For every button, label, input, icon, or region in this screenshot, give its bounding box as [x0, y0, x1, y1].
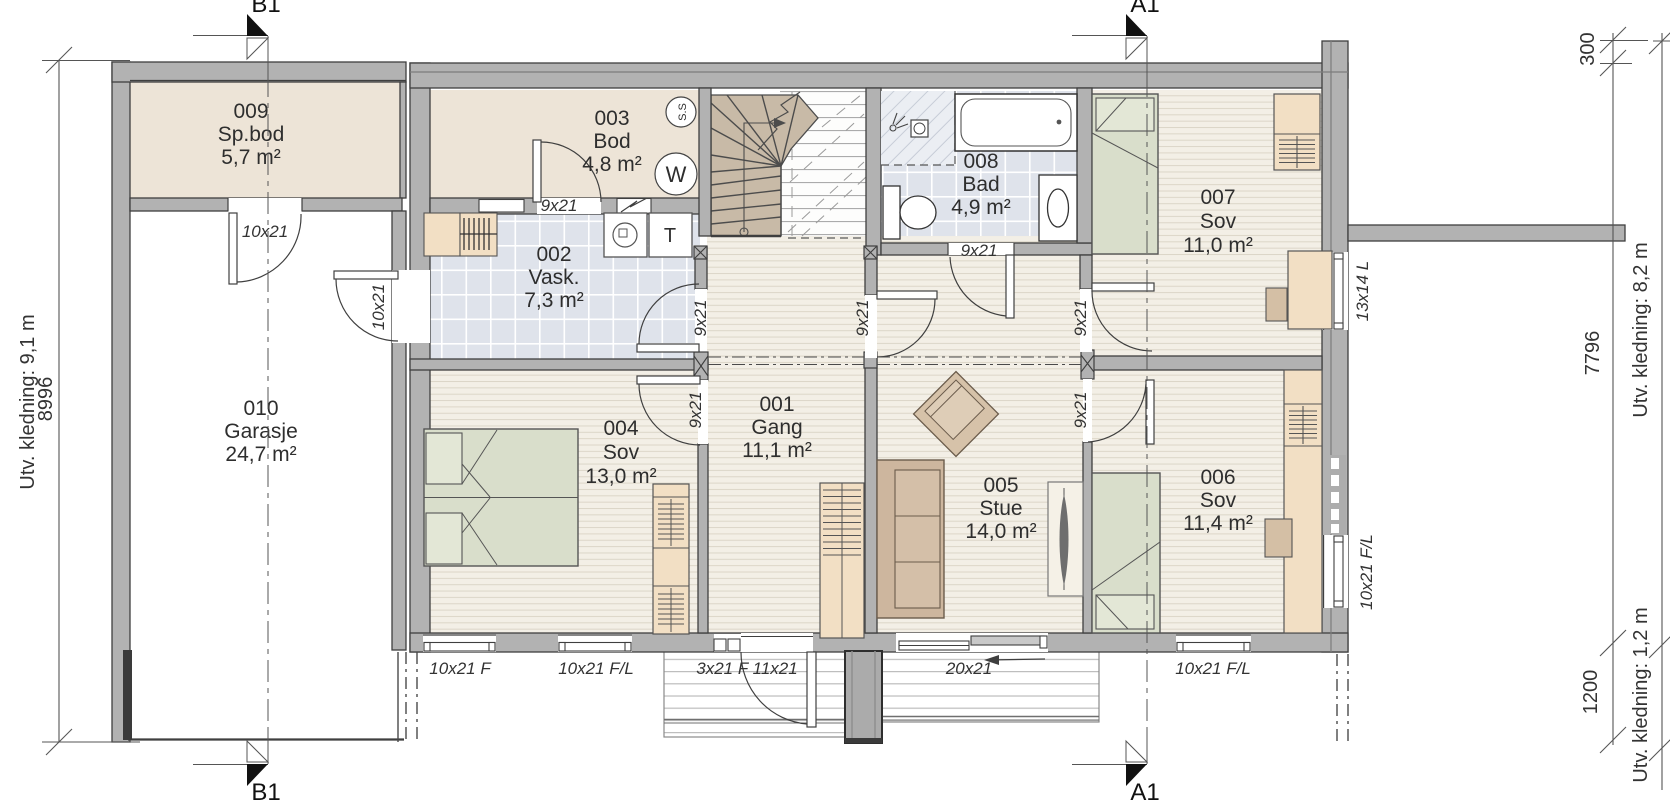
svg-text:300: 300	[1577, 32, 1599, 65]
svg-text:13x14 L: 13x14 L	[1353, 261, 1372, 322]
svg-text:003: 003	[594, 107, 629, 130]
svg-text:10x21 F/L: 10x21 F/L	[1357, 534, 1376, 610]
svg-text:T: T	[664, 225, 676, 247]
svg-text:5,7 m²: 5,7 m²	[221, 146, 281, 169]
svg-text:Vask.: Vask.	[529, 266, 580, 289]
svg-text:001: 001	[759, 393, 794, 416]
svg-text:006: 006	[1200, 466, 1235, 489]
svg-text:3x21 F 11x21: 3x21 F 11x21	[696, 659, 797, 678]
svg-text:9x21: 9x21	[691, 300, 710, 337]
svg-text:9x21: 9x21	[541, 196, 578, 215]
svg-text:9x21: 9x21	[961, 241, 998, 260]
svg-text:Bad: Bad	[962, 173, 999, 196]
svg-text:Sov: Sov	[1200, 489, 1237, 512]
svg-text:13,0 m²: 13,0 m²	[585, 465, 656, 488]
svg-text:Utv. kledning: 8,2 m: Utv. kledning: 8,2 m	[1630, 242, 1652, 417]
svg-text:11,1 m²: 11,1 m²	[742, 439, 812, 462]
svg-text:B1: B1	[251, 779, 280, 800]
svg-text:S.S: S.S	[677, 103, 689, 121]
svg-text:Sp.bod: Sp.bod	[218, 123, 285, 146]
svg-text:Utv. kledning: 1,2 m: Utv. kledning: 1,2 m	[1630, 607, 1652, 782]
svg-text:9x21: 9x21	[853, 300, 872, 337]
svg-text:10x21 F: 10x21 F	[429, 659, 492, 678]
svg-text:20x21: 20x21	[945, 659, 992, 678]
svg-text:14,0 m²: 14,0 m²	[965, 520, 1036, 543]
svg-text:11,4 m²: 11,4 m²	[1183, 512, 1253, 535]
svg-text:24,7 m²: 24,7 m²	[225, 443, 296, 466]
svg-text:Garasje: Garasje	[224, 420, 298, 443]
svg-text:A1: A1	[1130, 0, 1159, 18]
svg-text:002: 002	[536, 243, 571, 266]
svg-text:008: 008	[963, 150, 998, 173]
svg-text:10x21: 10x21	[369, 284, 388, 330]
svg-text:Sov: Sov	[603, 441, 640, 464]
svg-text:10x21: 10x21	[242, 222, 288, 241]
svg-text:4,9 m²: 4,9 m²	[951, 196, 1011, 219]
svg-text:007: 007	[1200, 186, 1235, 209]
svg-text:W: W	[666, 162, 687, 187]
svg-text:005: 005	[983, 474, 1018, 497]
svg-text:9x21: 9x21	[686, 392, 705, 429]
svg-text:10x21 F/L: 10x21 F/L	[558, 659, 634, 678]
svg-text:Gang: Gang	[751, 416, 802, 439]
svg-text:11,0 m²: 11,0 m²	[1183, 234, 1253, 257]
svg-text:B1: B1	[251, 0, 280, 18]
svg-text:Bod: Bod	[593, 130, 630, 153]
svg-text:4,8 m²: 4,8 m²	[582, 153, 642, 176]
svg-text:Stue: Stue	[979, 497, 1022, 520]
svg-text:9x21: 9x21	[1071, 392, 1090, 429]
svg-text:7,3 m²: 7,3 m²	[524, 289, 584, 312]
svg-text:1200: 1200	[1580, 670, 1602, 715]
svg-text:10x21 F/L: 10x21 F/L	[1175, 659, 1251, 678]
svg-text:010: 010	[243, 397, 278, 420]
svg-text:9x21: 9x21	[1071, 300, 1090, 337]
svg-text:004: 004	[603, 417, 638, 440]
svg-text:7796: 7796	[1582, 331, 1604, 376]
svg-text:A1: A1	[1130, 779, 1159, 800]
svg-text:Sov: Sov	[1200, 210, 1237, 233]
svg-text:009: 009	[233, 100, 268, 123]
svg-text:8996: 8996	[35, 377, 57, 422]
